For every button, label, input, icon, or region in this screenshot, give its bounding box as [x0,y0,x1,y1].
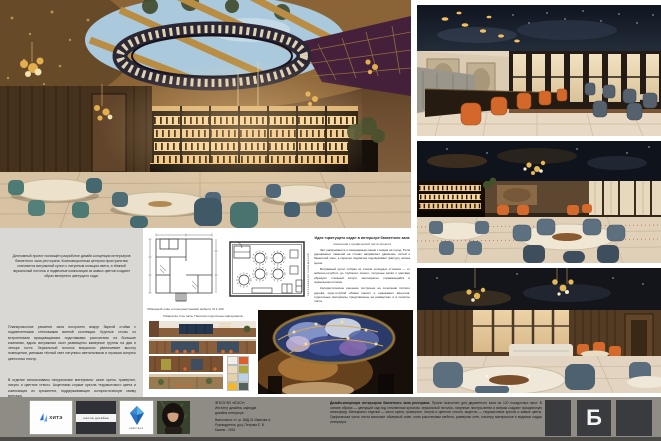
school-logo: школа дизайна [76,401,116,434]
competition-logo: кристалл [120,401,153,434]
school-logo-text: школа дизайна [83,416,109,420]
university-logo-text: ХИТЭ [49,415,62,420]
project-intro-text: Дипломный проект посвящён разработке диз… [9,254,134,279]
evening-hall-render [417,268,661,393]
plan-side-label: экспликация помещений [306,236,310,296]
swatch [238,382,249,391]
university-logo-icon [39,413,48,422]
main-hall-render [0,0,411,228]
title-bar: ХИТЭ школа дизайна кристалл [0,397,661,441]
furniture-plan [226,237,308,301]
annotation-block: Дизайн-концепция интерьеров банкетного з… [330,401,542,424]
note-paragraph-2: Витражный купол собран из стекла холодны… [314,267,410,284]
presentation-board: Дипломный проект посвящён разработке диз… [0,0,661,441]
wall-elevation-4 [149,374,223,389]
sheet-letter-badge: Б [577,400,611,436]
description-paragraph-2: В отделке использованы натуральные матер… [8,378,136,399]
credits-block: ФГБОУ ВО «КГАСУ» Институт дизайна, кафед… [215,401,315,433]
measurement-plan [146,231,222,305]
round-tables-render [417,141,661,263]
material-swatches [227,356,248,390]
annotation-lead: Дизайн-концепция интерьеров банкетного з… [330,401,430,405]
description-panel: Дипломный проект посвящён разработке диз… [0,228,143,397]
footer-square-1 [545,400,571,436]
note-heading: Идея «цветущего сада» в интерьере банкет… [314,236,410,241]
swatch [227,382,238,391]
competition-logo-text: кристалл [129,427,143,430]
note-paragraph-3: Колористическое решение построено на соч… [314,286,410,303]
crystal-icon [129,406,145,426]
stained-glass-dome-render [258,310,413,394]
dining-row-render [417,5,661,136]
university-logo: ХИТЭ [30,401,72,434]
author-photo [157,401,190,434]
description-paragraph-1: Планировочное решение зала построено вок… [8,325,136,362]
concept-note: Идея «цветущего сада» в интерьере банкет… [314,236,410,305]
sheet-letter: Б [586,405,602,431]
credits-line: Казань · 2024 [215,428,315,433]
note-subheading: пояснения к графической части проекта [314,242,410,246]
school-logo-band: школа дизайна [76,414,116,422]
palette-caption: Развертки стен зала. Палитра отделочных … [149,315,257,319]
footer-square-2 [616,400,652,436]
wall-elevation-2 [149,339,256,354]
wall-elevation-1 [149,321,256,337]
note-paragraph-1: Зал раскрывается к панорамным окнам с ви… [314,248,410,265]
wall-elevation-3 [149,356,223,372]
